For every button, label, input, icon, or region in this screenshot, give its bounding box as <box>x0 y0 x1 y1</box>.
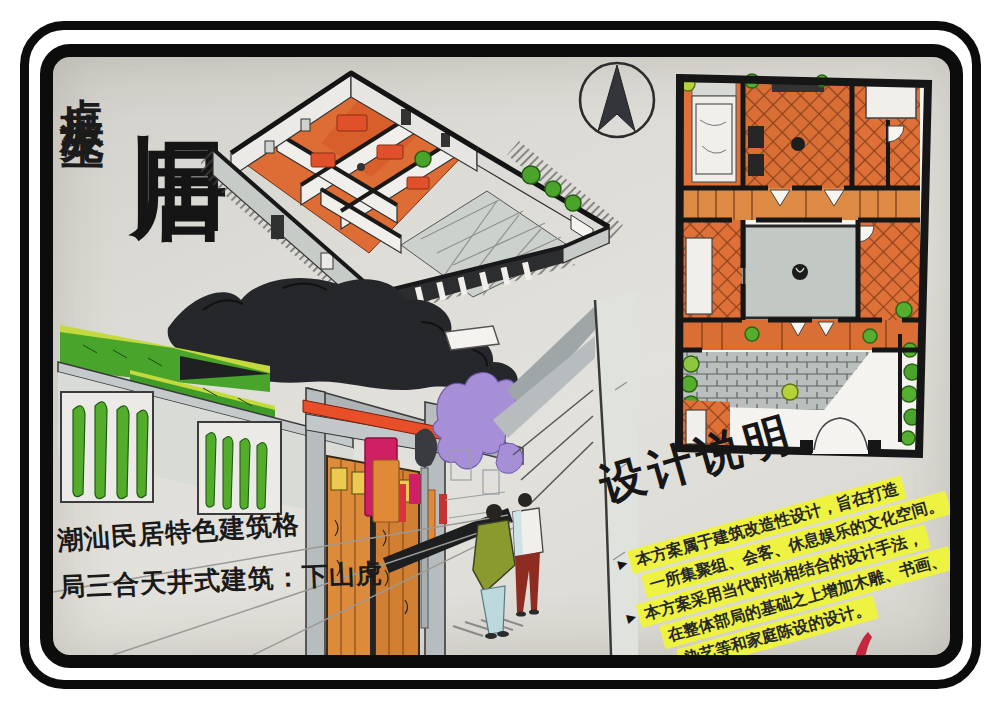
design-board-photo: 卓振波先生 旧居 <box>0 0 1000 720</box>
red-signature-mark-icon <box>850 629 874 668</box>
photo-frame-inner: 卓振波先生 旧居 <box>40 44 963 668</box>
floor-plan-drawing <box>672 68 948 470</box>
drawing-paper: 卓振波先生 旧居 <box>53 57 950 655</box>
owner-name-vertical: 卓振波先生 <box>61 63 105 98</box>
